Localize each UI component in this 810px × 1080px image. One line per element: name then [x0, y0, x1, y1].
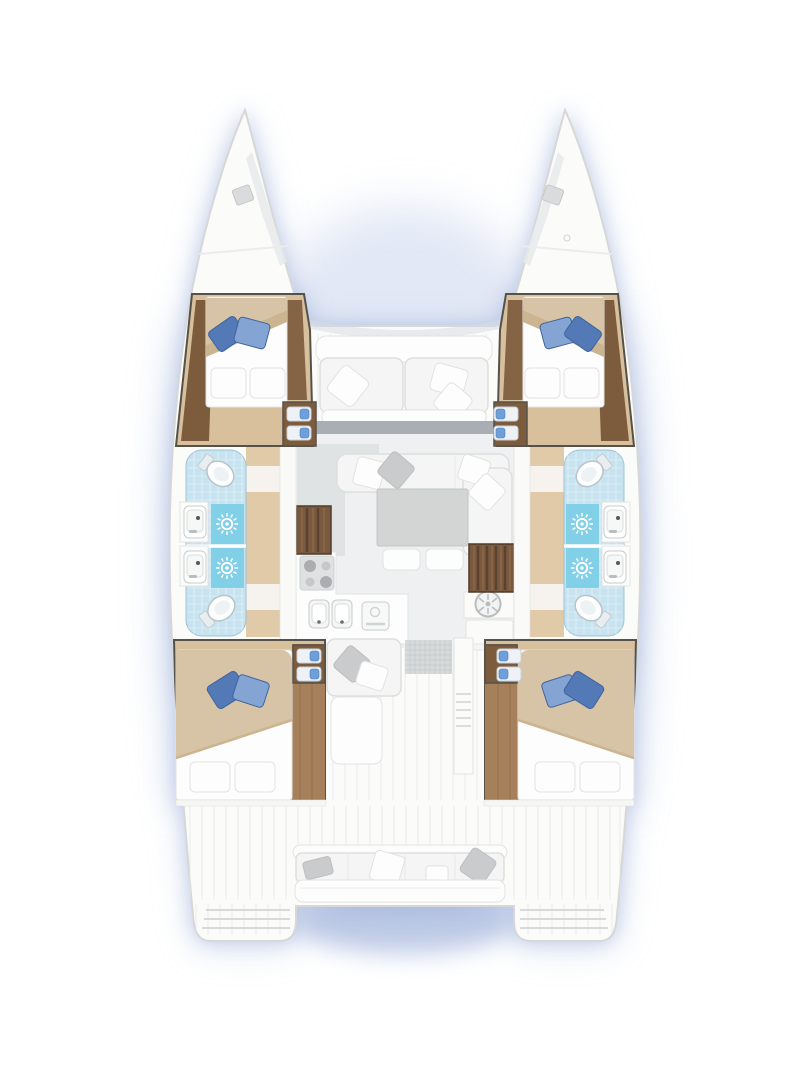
bed-pillow — [250, 368, 285, 398]
cabin-steps-unit — [494, 402, 527, 446]
oven-icon — [362, 602, 389, 630]
bed-pillow — [211, 368, 246, 398]
salon-side-wall — [280, 440, 296, 648]
ottoman — [426, 549, 463, 570]
cockpit-grate — [405, 640, 452, 674]
washbasin-icon — [604, 506, 626, 538]
port-hull-corridor — [246, 440, 296, 648]
bed-pillow — [235, 762, 275, 792]
floor-plan-stage — [0, 0, 810, 1080]
stern-bench — [293, 845, 507, 902]
bed-pillow — [580, 762, 620, 792]
door-opening — [530, 466, 564, 492]
cabin-aft-wall — [484, 800, 634, 806]
galley-sink-icon — [332, 600, 352, 628]
cabin-steps-unit — [283, 402, 316, 446]
starboard-forward-cabin — [494, 294, 634, 446]
washbasin-icon — [184, 506, 206, 538]
utility-area — [464, 592, 514, 645]
bed-pillow — [525, 368, 560, 398]
port-aft-cabin — [174, 640, 325, 802]
bed-pillow — [535, 762, 575, 792]
starboard-bathrooms — [564, 450, 630, 636]
door-opening — [246, 584, 280, 610]
cabin-steps-unit — [485, 645, 521, 683]
salon-table — [377, 489, 468, 546]
galley-sink-icon — [309, 600, 329, 628]
washbasin-icon — [604, 551, 626, 583]
cabin-steps-unit — [293, 645, 325, 683]
door-opening — [246, 466, 280, 492]
starboard-hull-corridor — [514, 440, 564, 648]
stern-bench-base — [295, 880, 505, 902]
bed-pillow — [190, 762, 230, 792]
cockpit-table — [331, 697, 382, 764]
cabin-aft-wall — [176, 800, 326, 806]
bed-pillow — [564, 368, 599, 398]
washbasin-icon — [184, 551, 206, 583]
cockpit-forward-seat — [327, 639, 401, 696]
port-bathrooms — [180, 450, 246, 636]
round-appliance-icon — [476, 592, 501, 617]
starboard-companionway-stairs — [469, 544, 514, 592]
floor-plan-canvas — [0, 0, 810, 1080]
door-opening — [530, 584, 564, 610]
port-forward-cabin — [176, 294, 316, 446]
windshield-band — [301, 421, 509, 435]
ottoman — [383, 549, 420, 570]
salon-side-wall — [514, 440, 530, 648]
starboard-aft-cabin — [485, 640, 636, 802]
flybridge-ladder — [454, 638, 473, 774]
